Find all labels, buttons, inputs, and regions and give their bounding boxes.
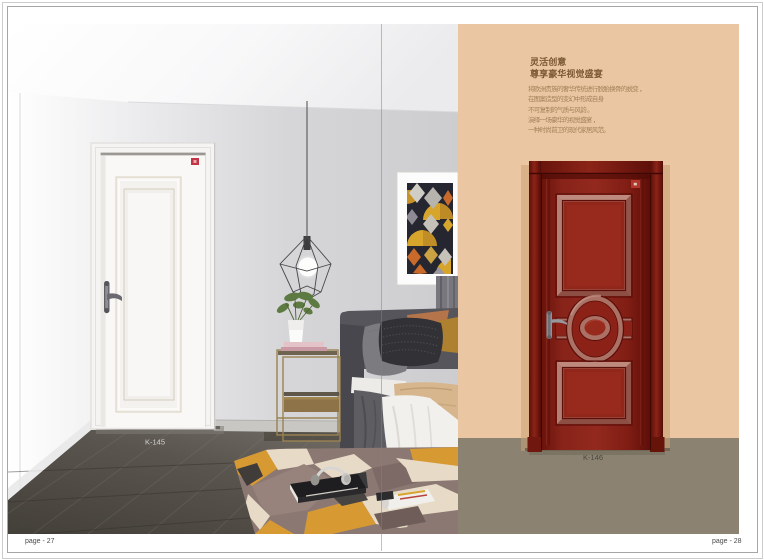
svg-text:K-145: K-145 xyxy=(145,438,165,447)
